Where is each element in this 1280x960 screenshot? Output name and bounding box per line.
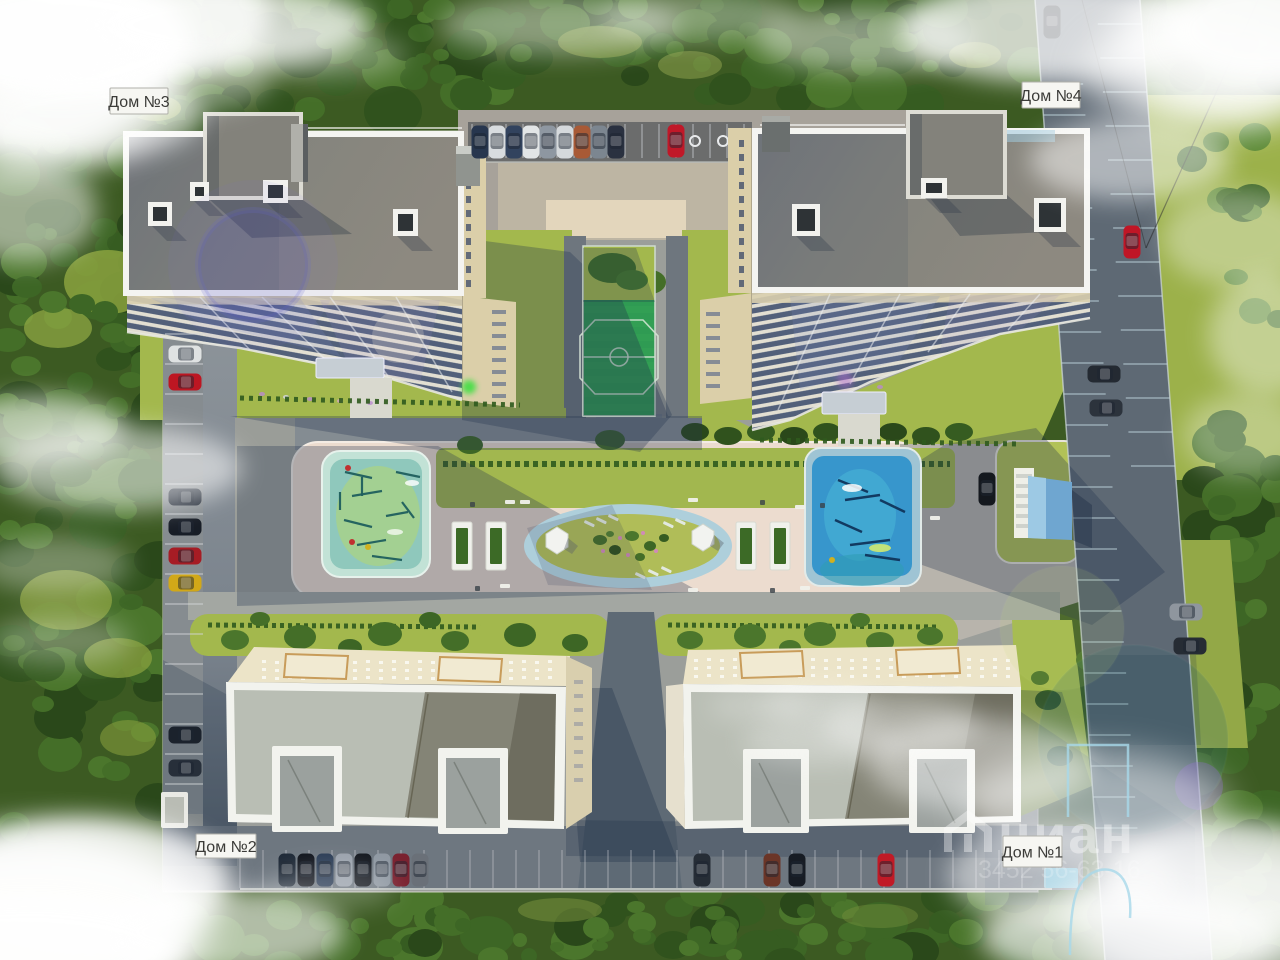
svg-text:Дом №1: Дом №1 [1002, 844, 1064, 861]
svg-text:Дом №3: Дом №3 [108, 94, 170, 111]
svg-text:Дом №2: Дом №2 [195, 839, 257, 856]
svg-text:Дом №4: Дом №4 [1020, 88, 1082, 105]
